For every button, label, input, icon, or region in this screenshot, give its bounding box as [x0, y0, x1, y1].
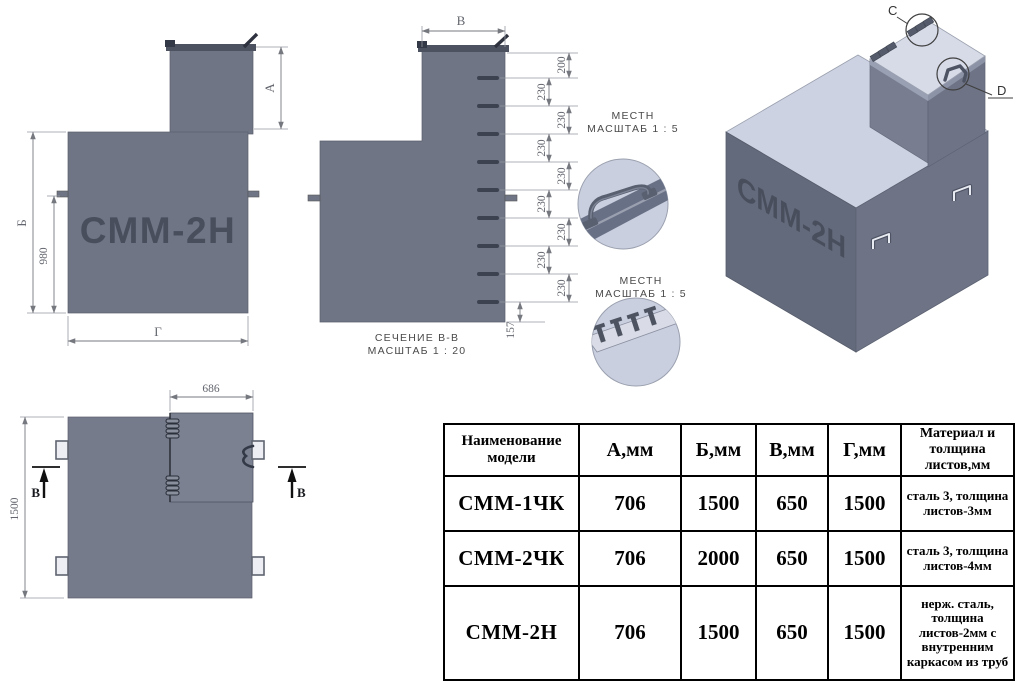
dim-230: 230	[556, 279, 568, 297]
section-caption-line2: МАСШТАБ 1 : 20	[368, 345, 467, 357]
section-tab-right	[505, 195, 517, 201]
section-arrow-left-label: В	[31, 485, 40, 500]
cell-g: 1500	[828, 531, 901, 586]
cell-v: 650	[756, 586, 828, 680]
cell-material: сталь 3, толщина листов-3мм	[901, 476, 1014, 531]
dim-200: 200	[556, 56, 568, 74]
dim-230: 230	[536, 139, 548, 157]
dim-230: 230	[536, 195, 548, 213]
cell-model: СММ-1ЧК	[444, 476, 579, 531]
cell-v: 650	[756, 476, 828, 531]
dim-label-b: Б	[14, 219, 29, 226]
cell-b: 1500	[681, 476, 756, 531]
dim-label-980: 980	[38, 247, 50, 265]
front-lid-hinge	[165, 40, 175, 47]
header-dim-g: Г,мм	[828, 424, 901, 476]
cell-a: 706	[579, 586, 681, 680]
top-lid	[170, 413, 253, 502]
dim-157: 157	[505, 321, 517, 339]
section-arrow-left: В	[31, 467, 60, 500]
detail-c-caption-line2: МАСШТАБ 1 : 5	[587, 123, 679, 135]
dim-230: 230	[556, 111, 568, 129]
table-row: СММ-2Н 706 1500 650 1500 нерж. сталь, то…	[444, 586, 1014, 680]
dim-label-v: В	[457, 13, 466, 28]
front-chimney	[170, 50, 253, 134]
front-model-label: СММ-2Н	[80, 210, 237, 251]
header-dim-a: А,мм	[579, 424, 681, 476]
cell-b: 1500	[681, 586, 756, 680]
detail-d-caption-line1: МЕСТН	[620, 275, 663, 287]
front-tab-right	[248, 191, 259, 197]
callout-c-leader	[897, 17, 908, 24]
detail-view-handle: МЕСТН МАСШТАБ 1 : 5	[570, 110, 679, 249]
dim-label-686: 686	[202, 383, 220, 395]
dim-label-1500: 1500	[9, 497, 21, 520]
header-dim-b: Б,мм	[681, 424, 756, 476]
callout-c-label: C	[888, 3, 898, 18]
section-body	[320, 51, 505, 322]
dim-230: 230	[536, 83, 548, 101]
cell-g: 1500	[828, 586, 901, 680]
iso-view: СММ-2Н C D	[726, 3, 1013, 352]
front-lid	[166, 44, 256, 51]
cell-model: СММ-2Н	[444, 586, 579, 680]
section-caption-line1: СЕЧЕНИЕ В-В	[375, 332, 459, 344]
callout-d-label: D	[997, 83, 1007, 98]
table-header-row: Наименование модели А,мм Б,мм В,мм Г,мм …	[444, 424, 1014, 476]
detail-view-hinge: МЕСТН МАСШТАБ 1 : 5	[586, 275, 687, 386]
cell-a: 706	[579, 476, 681, 531]
dim-230: 230	[556, 167, 568, 185]
spec-table-container: Наименование модели А,мм Б,мм В,мм Г,мм …	[443, 423, 1013, 681]
header-dim-v: В,мм	[756, 424, 828, 476]
dim-label-g: Г	[154, 324, 162, 339]
dim-230: 230	[556, 223, 568, 241]
cell-material: сталь 3, толщина листов-4мм	[901, 531, 1014, 586]
cell-g: 1500	[828, 476, 901, 531]
table-row: СММ-1ЧК 706 1500 650 1500 сталь 3, толщи…	[444, 476, 1014, 531]
section-arrow-right: В	[278, 467, 306, 500]
header-material: Материал и толщина листов,мм	[901, 424, 1014, 476]
top-view: 686 1500 В В	[9, 383, 306, 598]
cell-model: СММ-2ЧК	[444, 531, 579, 586]
drawing-sheet: СММ-2Н А Б 980 Г	[0, 0, 1024, 688]
section-tab-left	[308, 195, 320, 201]
spec-table: Наименование модели А,мм Б,мм В,мм Г,мм …	[443, 423, 1015, 681]
header-model: Наименование модели	[444, 424, 579, 476]
cell-a: 706	[579, 531, 681, 586]
cell-b: 2000	[681, 531, 756, 586]
table-row: СММ-2ЧК 706 2000 650 1500 сталь 3, толщи…	[444, 531, 1014, 586]
section-arrow-right-label: В	[297, 485, 306, 500]
detail-c-caption-line1: МЕСТН	[612, 110, 655, 122]
cell-material: нерж. сталь, толщина листов-2мм с внутре…	[901, 586, 1014, 680]
section-view: В 200 230 230 230 230	[308, 13, 578, 357]
dim-230: 230	[536, 251, 548, 269]
cell-v: 650	[756, 531, 828, 586]
front-view: СММ-2Н А Б 980 Г	[14, 34, 288, 346]
dim-label-a: А	[262, 83, 277, 93]
